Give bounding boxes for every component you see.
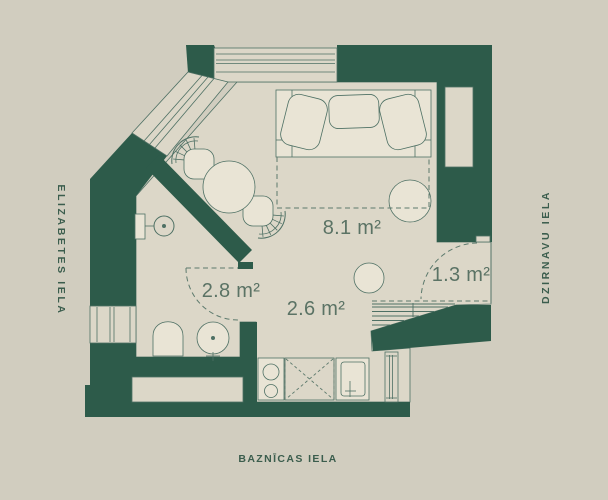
entry-door-leaf <box>476 236 490 242</box>
bathroom-door-jamb <box>238 262 253 269</box>
wall-niche-bottom <box>132 377 243 402</box>
sofa-cushion-center <box>328 94 379 129</box>
window-left <box>90 306 136 343</box>
street-label-elizabetes: ELIZABETES IELA <box>55 184 67 315</box>
area-label-living: 8.1 m² <box>323 217 382 239</box>
wall-kitchen-partition <box>240 322 257 417</box>
window-top <box>214 48 337 82</box>
area-label-bathroom: 2.8 m² <box>202 280 261 302</box>
floor-plan-page: 8.1 m² 2.8 m² 2.6 m² 1.3 m² ELIZABETES I… <box>0 0 608 500</box>
pouf-large <box>389 180 431 222</box>
wall-bottom-kitchen <box>257 402 410 417</box>
dining-table <box>203 161 255 213</box>
pouf-small <box>354 263 384 293</box>
area-label-entry: 1.3 m² <box>432 264 491 286</box>
wall-niche-right <box>445 87 473 167</box>
kitchen-sink <box>336 358 369 400</box>
window-entry-lower <box>385 352 398 402</box>
floor-plan-drawing: 8.1 m² 2.8 m² 2.6 m² 1.3 m² ELIZABETES I… <box>0 0 608 500</box>
sofa <box>276 90 431 157</box>
area-label-kitchen: 2.6 m² <box>287 298 346 320</box>
street-label-baznicas: BAZNĪCAS IELA <box>238 453 337 465</box>
street-label-dzirnavu: DZIRNAVU IELA <box>540 190 552 304</box>
toilet <box>153 322 183 356</box>
